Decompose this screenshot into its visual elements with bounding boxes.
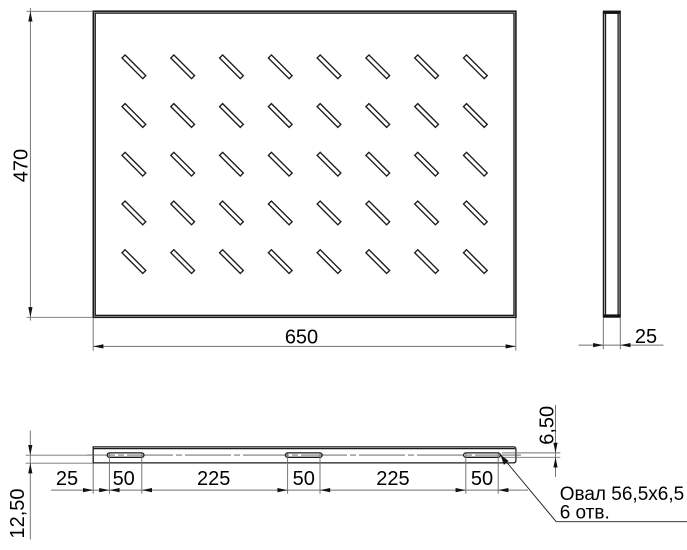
- svg-text:25: 25: [635, 326, 657, 348]
- svg-text:12,50: 12,50: [7, 488, 29, 538]
- svg-text:650: 650: [285, 327, 318, 349]
- svg-text:50: 50: [113, 468, 135, 490]
- svg-text:6 отв.: 6 отв.: [560, 503, 610, 524]
- svg-text:225: 225: [197, 468, 230, 490]
- svg-text:225: 225: [376, 468, 409, 490]
- svg-text:25: 25: [56, 468, 78, 490]
- svg-text:50: 50: [471, 468, 493, 490]
- svg-text:50: 50: [293, 468, 315, 490]
- svg-text:470: 470: [11, 149, 33, 182]
- svg-text:6,50: 6,50: [537, 406, 559, 445]
